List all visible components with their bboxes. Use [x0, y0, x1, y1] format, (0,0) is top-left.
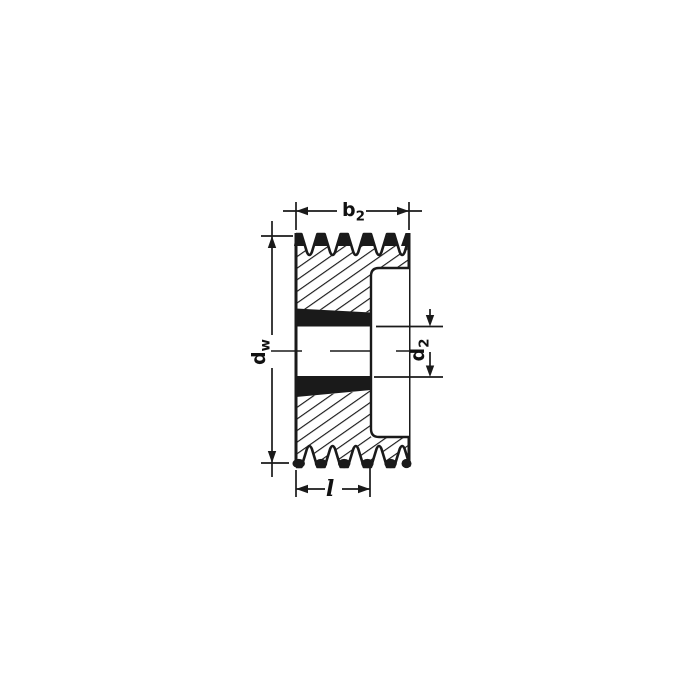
dimension-b2: b2 [283, 199, 422, 230]
b2-arrow-right [397, 207, 409, 215]
dw-arrow-bottom [268, 451, 276, 463]
b2-label: b2 [342, 199, 365, 225]
b2-arrow-left [296, 207, 308, 215]
taper-bushing-recess [371, 268, 409, 437]
l-arrow-right [358, 485, 370, 493]
dimension-dw: dw [248, 221, 293, 477]
d2-label: d2 [407, 338, 433, 361]
dimension-l: l [296, 461, 370, 502]
d2-arrow-top [426, 315, 434, 327]
dw-label: dw [248, 339, 274, 365]
flange-tip-caps-bottom [293, 459, 412, 468]
l-arrow-left [296, 485, 308, 493]
pulley-technical-drawing: b2 dw d2 [0, 0, 700, 700]
l-label: l [326, 476, 334, 502]
d2-arrow-bottom [426, 366, 434, 378]
dw-arrow-top [268, 236, 276, 248]
drawing-canvas: b2 dw d2 [0, 0, 700, 700]
